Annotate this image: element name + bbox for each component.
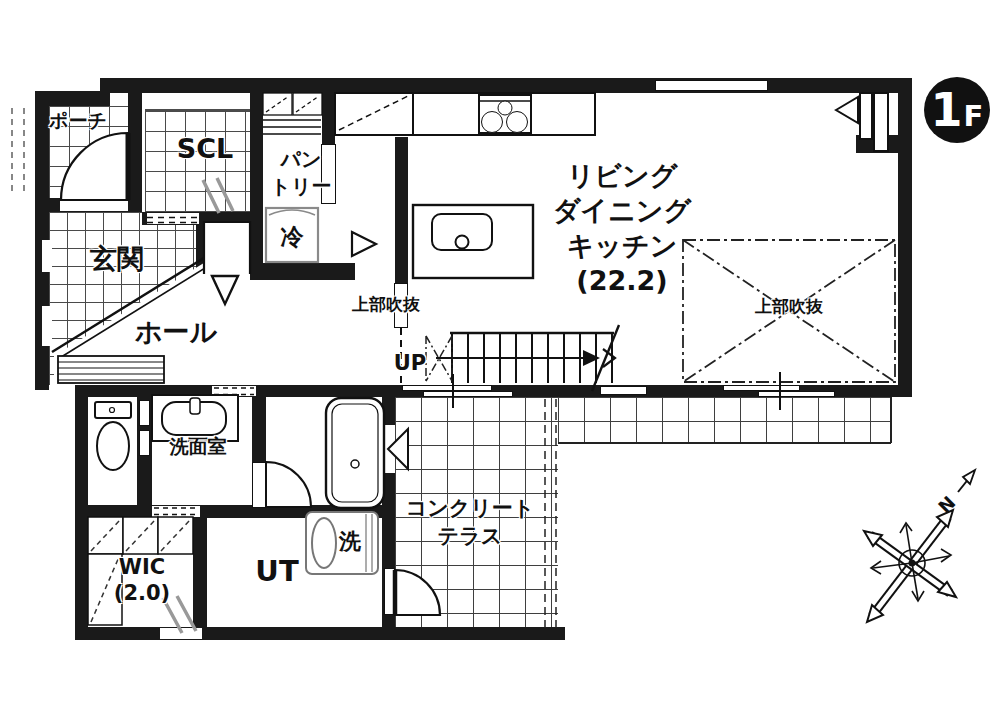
terrace-label-1: コンクリート — [406, 497, 534, 519]
scl-opening-dashes — [147, 218, 199, 223]
terrace-boundary-dashes — [545, 399, 556, 628]
washroom-label: 洗面室 — [170, 437, 227, 457]
floor-badge: 1F — [924, 77, 990, 143]
plan-linework: N 1F — [0, 0, 1000, 718]
utility-label: UT — [255, 556, 298, 586]
wic-label-2: (2.0) — [114, 582, 170, 604]
bath-window-marker — [388, 429, 408, 469]
pantry-label-2: トリー — [271, 176, 332, 197]
terrace-edge-lines — [558, 397, 891, 443]
wic-label-1: WIC — [119, 556, 165, 578]
ldk-label-4: (22.2) — [576, 267, 667, 295]
fridge-label: 冷 — [281, 225, 304, 249]
genkan-bench — [58, 356, 164, 383]
ldk-label-1: リビング — [567, 162, 678, 190]
terrace-door-arc — [395, 570, 440, 615]
bathtub-icon — [266, 398, 384, 508]
bath-door-arc — [266, 462, 311, 507]
stairs — [426, 325, 622, 391]
compass-rose: N — [864, 470, 975, 622]
hall-label: ホール — [135, 318, 217, 346]
porch-door-arc — [61, 133, 128, 200]
kitchen-counter — [335, 93, 595, 135]
void-right-label: 上部吹抜 — [755, 298, 823, 316]
top-right-door — [836, 93, 888, 151]
floor-badge-number: 1 — [931, 83, 963, 137]
ldk-label-3: キッチン — [567, 232, 678, 260]
floor-plan: N 1F ポーチ SCL パン トリー 冷 玄関 ホール リビング ダイニング … — [0, 0, 1000, 718]
kitchen-island — [413, 205, 533, 278]
scl-label: SCL — [177, 135, 233, 163]
stairs-up-label: UP — [394, 352, 426, 374]
genkan-label: 玄関 — [90, 245, 144, 273]
pantry-passage-marker — [352, 232, 376, 256]
scl-door-marks — [203, 178, 233, 213]
void-left-label: 上部吹抜 — [352, 296, 420, 314]
washer-label: 洗 — [339, 530, 361, 553]
floor-badge-suffix: F — [964, 99, 984, 133]
pantry-upper-cabinets — [263, 93, 322, 134]
stove-icon — [479, 95, 531, 133]
toilet-icon — [95, 402, 131, 470]
porch-label: ポーチ — [49, 111, 107, 131]
pantry-label-1: パン — [281, 149, 322, 170]
compass-north-label: N — [934, 492, 960, 518]
ldk-label-2: ダイニング — [553, 197, 691, 225]
genkan-closet — [204, 222, 250, 274]
terrace-label-2: テラス — [438, 525, 502, 547]
porch-eave-dashes — [12, 108, 24, 196]
